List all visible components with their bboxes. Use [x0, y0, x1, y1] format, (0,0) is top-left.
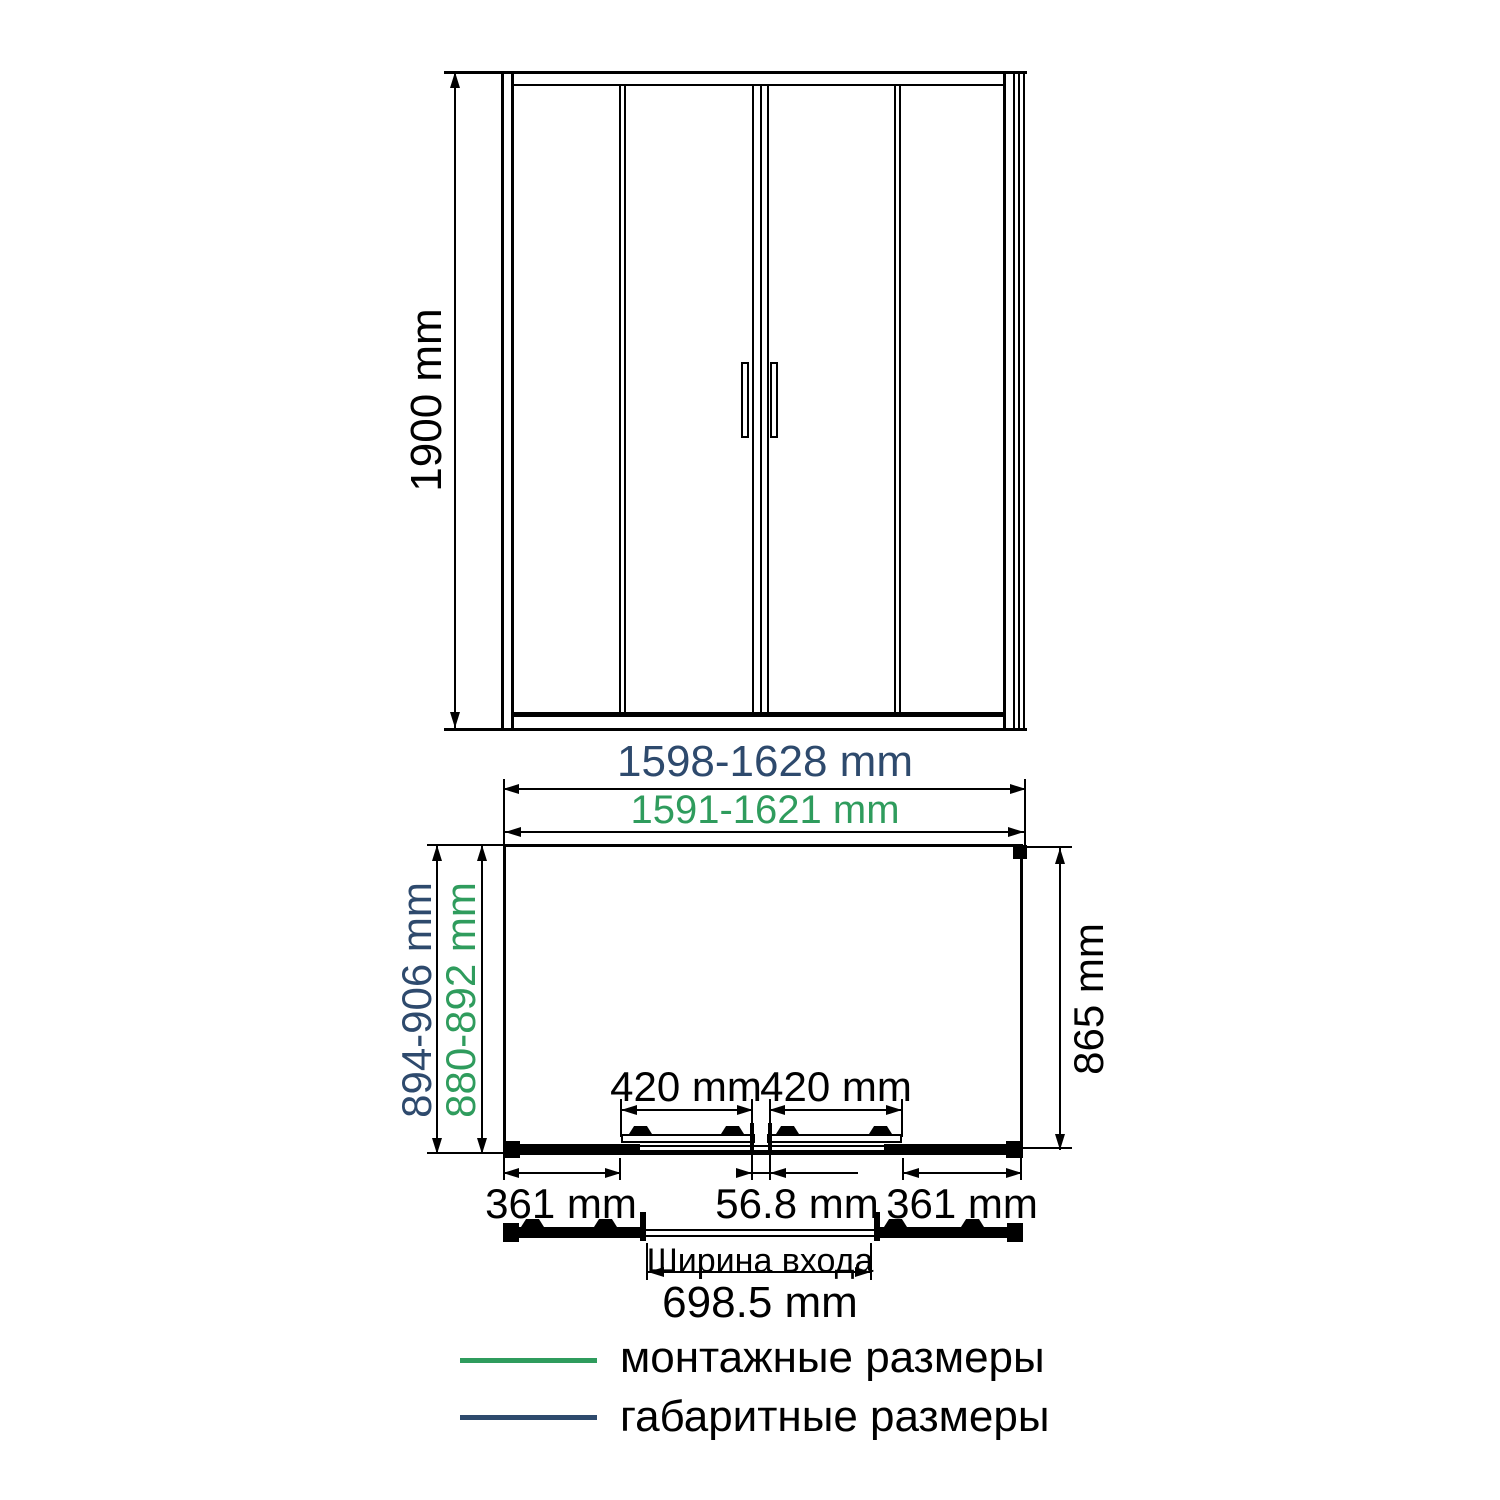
overall-depth-label: 894-906 mm — [396, 882, 438, 1118]
dimension-arrow-right-icon — [855, 1267, 871, 1277]
top-rail-line — [444, 71, 1027, 74]
extension-line — [769, 1154, 771, 1180]
extension-line — [619, 1158, 621, 1180]
stacked-doors-bar — [874, 1227, 1023, 1238]
dimension-arrow-left-icon — [503, 784, 519, 794]
door-right-dim-line — [769, 1109, 902, 1111]
center-stile-line — [752, 86, 754, 712]
fixed-right-label: 361 mm — [886, 1183, 1038, 1225]
shower-enclosure-dimension-drawing: 1900 mm 1598-1628 mm 1591-1621 mm — [0, 0, 1500, 1500]
dimension-arrow-right-icon — [1008, 827, 1024, 837]
door-handle — [741, 362, 749, 438]
dimension-arrow-down-icon — [450, 712, 460, 728]
extension-line — [751, 1154, 753, 1180]
right-depth-dim-line — [1059, 848, 1061, 1150]
extension-line — [503, 1158, 505, 1180]
extension-line — [769, 1099, 771, 1123]
sliding-door-bar — [621, 1134, 755, 1143]
entrance-width-label: 698.5 mm — [662, 1281, 858, 1325]
fixed-right-dim-line — [903, 1172, 1022, 1174]
left-wall-profile-line — [511, 71, 514, 731]
extension-line — [901, 1099, 903, 1137]
dimension-arrow-left-icon — [770, 1168, 786, 1178]
dimension-arrow-right-icon — [736, 1168, 752, 1178]
extension-line — [902, 1158, 904, 1180]
dimension-arrow-left-icon — [505, 827, 521, 837]
dimension-arrow-left-icon — [769, 1105, 785, 1115]
panel-divider-line — [619, 86, 621, 712]
top-rail-inner-line — [514, 84, 1004, 86]
overall-legend-swatch — [460, 1415, 597, 1420]
dimension-arrow-up-icon — [432, 845, 442, 861]
center-overlap-label: 56.8 mm — [715, 1183, 878, 1225]
extension-line — [1023, 1147, 1072, 1149]
center-overlap-dim-line — [736, 1172, 858, 1174]
entrance-dim-line — [647, 1271, 872, 1273]
center-stile-line — [760, 86, 762, 712]
extension-line — [427, 1152, 503, 1154]
panel-divider-line — [624, 86, 626, 712]
left-wall-profile-line — [501, 71, 504, 731]
dimension-arrow-right-icon — [886, 1105, 902, 1115]
fixed-panel-bar — [884, 1144, 1023, 1152]
overall-width-label: 1598-1628 mm — [617, 740, 913, 784]
door-edge-tick — [640, 1212, 646, 1241]
door-edge-tick — [874, 1212, 880, 1241]
bottom-rail-line — [444, 728, 1027, 731]
extension-line — [503, 779, 505, 844]
sliding-door-bar — [767, 1134, 902, 1143]
mounting-legend-label: монтажные размеры — [620, 1336, 1045, 1380]
overall-legend-label: габаритные размеры — [620, 1395, 1049, 1439]
track-end-block — [503, 1141, 520, 1158]
mounting-width-label: 1591-1621 mm — [630, 790, 899, 830]
center-stile-line — [767, 86, 769, 712]
center-stile-tick — [768, 1123, 772, 1152]
track-end-block — [503, 1223, 519, 1242]
right-wall-profile-line — [1013, 71, 1015, 731]
mounting-depth-label: 880-892 mm — [440, 882, 482, 1118]
extension-line — [1020, 1158, 1022, 1180]
panel-divider-line — [894, 86, 896, 712]
dimension-arrow-up-icon — [477, 845, 487, 861]
bottom-rail-inner-line — [514, 712, 1004, 717]
door-handle — [770, 362, 778, 438]
right-depth-label: 865 mm — [1068, 923, 1110, 1075]
right-wall-profile-line — [1018, 71, 1020, 731]
height-dim-label: 1900 mm — [405, 308, 449, 491]
dimension-arrow-up-icon — [450, 72, 460, 88]
extension-line — [1023, 846, 1072, 848]
fixed-panel-bar — [503, 1144, 640, 1152]
extension-line — [620, 1099, 622, 1137]
track-end-block — [1006, 1141, 1023, 1158]
mounting-width-dim-line — [505, 831, 1024, 833]
height-dim-line — [454, 74, 456, 728]
dimension-arrow-left-icon — [621, 1105, 637, 1115]
door-left-width-label: 420 mm — [610, 1066, 762, 1108]
dimension-arrow-left-icon — [503, 1168, 519, 1178]
right-wall-profile-line — [1023, 71, 1025, 731]
fixed-left-label: 361 mm — [485, 1183, 637, 1225]
door-left-dim-line — [621, 1109, 753, 1111]
stacked-doors-bar — [503, 1227, 646, 1238]
fixed-left-dim-line — [503, 1172, 621, 1174]
door-right-width-label: 420 mm — [760, 1066, 912, 1108]
track-end-block — [1007, 1223, 1023, 1242]
right-frame-line — [1003, 71, 1006, 731]
dimension-arrow-left-icon — [903, 1168, 919, 1178]
dimension-arrow-up-icon — [1055, 848, 1065, 864]
extension-line — [427, 844, 503, 846]
dimension-arrow-left-icon — [648, 1267, 664, 1277]
mounting-legend-swatch — [460, 1358, 597, 1363]
extension-line — [751, 1099, 753, 1123]
center-stile-tick — [750, 1123, 754, 1152]
panel-divider-line — [899, 86, 901, 712]
